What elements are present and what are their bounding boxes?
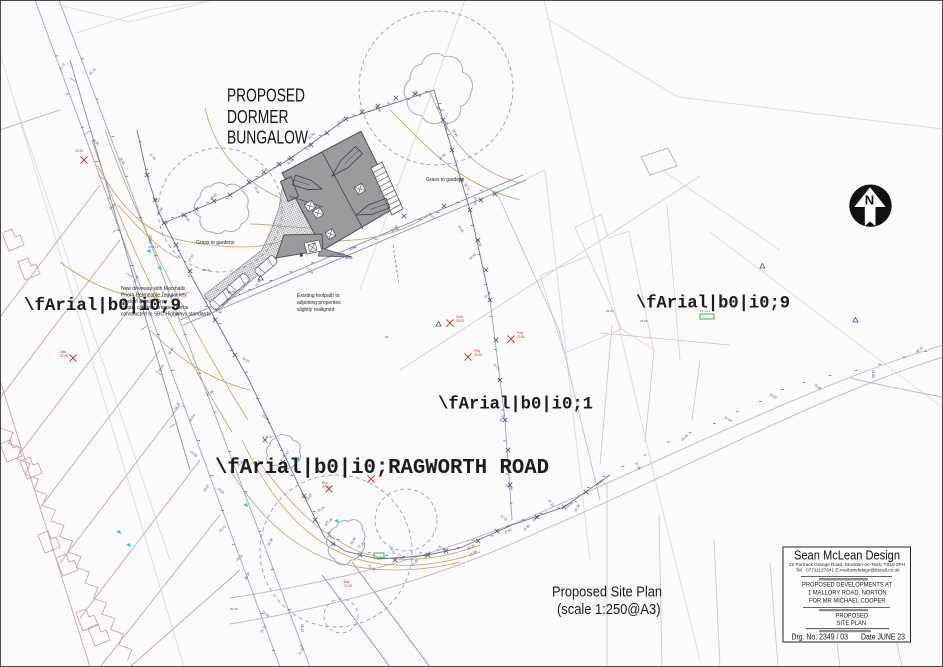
svg-text:30.60: 30.60 <box>345 256 353 260</box>
svg-text:21.68: 21.68 <box>871 370 875 378</box>
svg-text:adjoining properties: adjoining properties <box>297 300 341 306</box>
svg-text:29.88: 29.88 <box>228 290 236 294</box>
svg-text:SITE PLAN: SITE PLAN <box>837 620 867 627</box>
svg-text:25.03: 25.03 <box>444 122 448 130</box>
svg-text:21.98: 21.98 <box>344 584 352 588</box>
svg-text:45.80: 45.80 <box>337 252 345 256</box>
svg-text:\fArial|b0|i0;9: \fArial|b0|i0;9 <box>24 296 181 316</box>
svg-text:CL 27.2: CL 27.2 <box>148 245 159 249</box>
svg-text:PROPOSED DEVELOPMENTS AT: PROPOSED DEVELOPMENTS AT <box>802 582 892 589</box>
svg-text:Sean McLean Design: Sean McLean Design <box>794 548 900 563</box>
svg-text:slightly realigned: slightly realigned <box>297 307 334 313</box>
svg-text:27.15: 27.15 <box>473 197 477 205</box>
svg-text:30.40: 30.40 <box>203 268 211 272</box>
svg-text:25.03: 25.03 <box>606 309 614 313</box>
svg-text:24.88: 24.88 <box>640 319 648 323</box>
svg-text:21.98: 21.98 <box>60 354 68 358</box>
svg-text:27.40: 27.40 <box>322 485 330 489</box>
svg-text:DORMER: DORMER <box>227 106 289 127</box>
svg-text:22.98: 22.98 <box>75 149 83 153</box>
svg-text:N: N <box>865 193 874 208</box>
svg-text:1 MALLORY ROAD, NORTON: 1 MALLORY ROAD, NORTON <box>808 590 887 597</box>
svg-text:Existing footpath to: Existing footpath to <box>297 293 340 299</box>
svg-text:FOR MR MICHAEL COOPER: FOR MR MICHAEL COOPER <box>809 598 886 605</box>
svg-text:26.13: 26.13 <box>300 624 304 632</box>
svg-text:\fArial|b0|i0;1: \fArial|b0|i0;1 <box>438 395 593 415</box>
svg-text:30: 30 <box>385 335 389 339</box>
svg-text:Date JUNE 23: Date JUNE 23 <box>861 633 905 642</box>
svg-text:\fArial|b0|i0;RAGWORTH ROAD: \fArial|b0|i0;RAGWORTH ROAD <box>215 456 549 480</box>
svg-text:Drg. No. 2349 / 03: Drg. No. 2349 / 03 <box>792 633 849 642</box>
svg-text:22 Portrack Grange Road, Stock: 22 Portrack Grange Road, Stockton-on-Tee… <box>789 562 905 567</box>
svg-text:(scale 1:250@A3): (scale 1:250@A3) <box>557 601 661 618</box>
svg-text:IL 21.47: IL 21.47 <box>262 435 273 439</box>
svg-text:26.30: 26.30 <box>474 353 482 357</box>
svg-text:PROPOSED: PROPOSED <box>836 612 869 619</box>
svg-text:BUNGALOW: BUNGALOW <box>227 127 309 148</box>
svg-text:20.29: 20.29 <box>230 607 238 611</box>
svg-text:25.50: 25.50 <box>517 335 525 339</box>
svg-text:PROPOSED: PROPOSED <box>227 85 305 106</box>
svg-text:New driveway with Marshalls: New driveway with Marshalls <box>121 286 186 292</box>
svg-text:Grass to gardens: Grass to gardens <box>426 177 465 183</box>
svg-text:28.00: 28.00 <box>456 319 464 323</box>
svg-text:Grass to gardens: Grass to gardens <box>196 240 235 246</box>
svg-text:23.34: 23.34 <box>148 235 152 243</box>
svg-text:Tel : 07711127641 E-mail:smdes: Tel : 07711127641 E-mail:smdesign@tiscal… <box>796 567 900 572</box>
svg-text:Proposed Site Plan: Proposed Site Plan <box>552 584 662 601</box>
svg-text:\fArial|b0|i0;9: \fArial|b0|i0;9 <box>636 294 790 314</box>
